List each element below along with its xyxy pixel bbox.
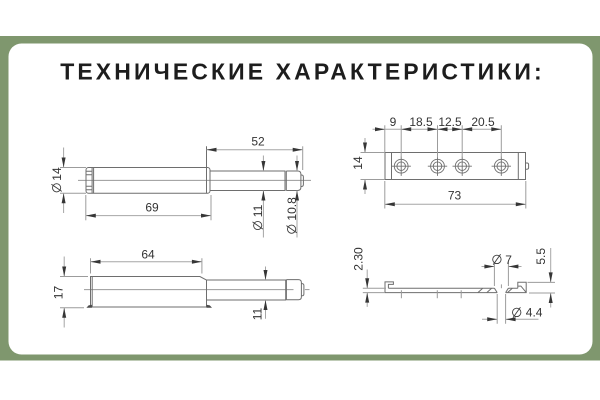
- svg-text:2.30: 2.30: [351, 247, 365, 271]
- svg-text:64: 64: [141, 248, 155, 262]
- svg-text:14: 14: [351, 156, 365, 170]
- svg-text:17: 17: [51, 286, 65, 300]
- svg-text:14: 14: [50, 167, 64, 181]
- svg-text:52: 52: [251, 134, 265, 148]
- svg-text:12.5: 12.5: [438, 115, 462, 129]
- svg-text:4.4: 4.4: [526, 306, 543, 320]
- svg-text:9: 9: [390, 115, 397, 129]
- svg-text:20.5: 20.5: [471, 115, 495, 129]
- svg-text:10.8: 10.8: [285, 197, 299, 221]
- svg-text:11: 11: [251, 307, 265, 320]
- svg-text:11: 11: [251, 204, 265, 217]
- svg-text:69: 69: [145, 201, 159, 215]
- svg-text:5.5: 5.5: [534, 248, 548, 265]
- svg-text:18.5: 18.5: [409, 115, 433, 129]
- svg-text:73: 73: [448, 189, 462, 203]
- svg-text:ТЕХНИЧЕСКИЕ ХАРАКТЕРИСТИКИ:: ТЕХНИЧЕСКИЕ ХАРАКТЕРИСТИКИ:: [60, 59, 545, 85]
- svg-text:7: 7: [505, 253, 512, 267]
